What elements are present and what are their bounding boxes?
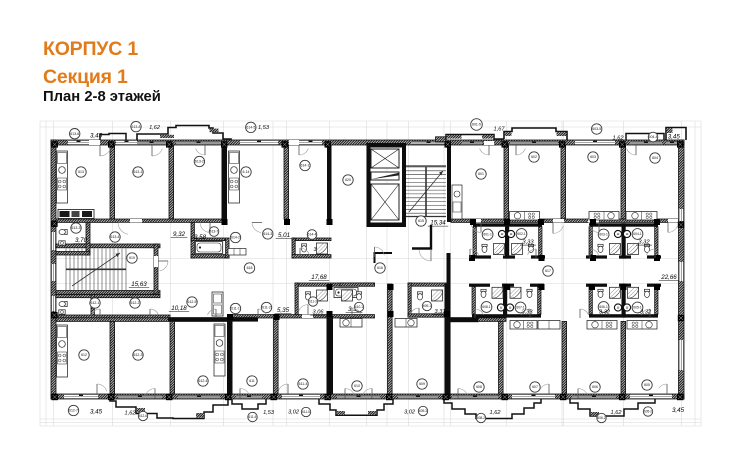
svg-text:613-3: 613-3	[72, 226, 81, 230]
svg-text:608-2: 608-2	[477, 416, 485, 420]
svg-text:17,68: 17,68	[311, 274, 327, 281]
svg-text:ш: ш	[617, 306, 620, 310]
svg-text:1,62: 1,62	[149, 125, 161, 131]
svg-text:603-5: 603-5	[592, 127, 601, 131]
svg-text:602-1: 602-1	[517, 232, 526, 236]
svg-text:3,31: 3,31	[435, 309, 446, 315]
svg-text:10,18: 10,18	[171, 305, 187, 312]
svg-text:604-4: 604-4	[649, 135, 658, 139]
svg-text:План 2-8 этажей: План 2-8 этажей	[43, 89, 161, 105]
svg-text:613-2: 613-2	[195, 160, 204, 164]
svg-text:611: 611	[249, 379, 255, 383]
svg-text:КОРПУС 1: КОРПУС 1	[43, 38, 138, 60]
svg-text:608: 608	[476, 385, 482, 389]
svg-text:612-6: 612-6	[139, 414, 147, 418]
svg-text:ш: ш	[617, 232, 620, 236]
svg-text:606-2: 606-2	[597, 416, 605, 420]
svg-text:3,45: 3,45	[90, 409, 103, 416]
svg-text:602: 602	[531, 155, 537, 159]
svg-text:3: 3	[314, 247, 317, 253]
svg-text:614-2: 614-2	[231, 236, 240, 240]
svg-text:1,62: 1,62	[125, 411, 137, 417]
svg-text:3,32: 3,32	[599, 310, 611, 316]
svg-text:612-3: 612-3	[134, 353, 143, 357]
svg-text:606: 606	[592, 385, 598, 389]
svg-text:612: 612	[81, 353, 87, 357]
svg-text:614-5: 614-5	[246, 126, 255, 130]
svg-text:3,45: 3,45	[668, 134, 681, 141]
svg-text:611-5: 611-5	[302, 410, 310, 414]
svg-text:5,35: 5,35	[277, 307, 290, 314]
svg-text:1,53: 1,53	[258, 125, 270, 131]
svg-text:3,45: 3,45	[90, 133, 103, 140]
svg-text:601-5: 601-5	[472, 123, 481, 127]
svg-text:ш: ш	[500, 306, 503, 310]
svg-text:613-6: 613-6	[70, 132, 79, 136]
svg-text:1,53: 1,53	[263, 410, 275, 416]
svg-text:610: 610	[354, 384, 360, 388]
svg-text:609: 609	[419, 382, 425, 386]
svg-text:618: 618	[247, 266, 253, 270]
svg-text:607: 607	[532, 385, 538, 389]
svg-text:603: 603	[590, 155, 596, 159]
svg-text:601: 601	[478, 172, 484, 176]
svg-text:612-2: 612-2	[131, 301, 140, 305]
svg-text:ш: ш	[501, 232, 504, 236]
svg-text:15,34: 15,34	[430, 220, 446, 227]
svg-text:605-2: 605-2	[644, 410, 652, 414]
svg-text:611-1: 611-1	[231, 307, 240, 311]
svg-text:613-8: 613-8	[132, 125, 141, 129]
svg-text:611-6: 611-6	[249, 415, 257, 419]
svg-text:3,70: 3,70	[75, 237, 88, 244]
svg-text:615: 615	[418, 219, 424, 223]
svg-text:603-1: 603-1	[599, 233, 608, 237]
svg-text:613-7: 613-7	[210, 230, 219, 234]
svg-text:ш: ш	[626, 232, 629, 236]
svg-text:604-1: 604-1	[633, 232, 642, 236]
svg-text:620: 620	[345, 178, 351, 182]
svg-text:15,63: 15,63	[131, 281, 147, 288]
svg-text:611-3: 611-3	[309, 300, 317, 304]
svg-text:609-3: 609-3	[419, 409, 427, 413]
svg-text:3,58: 3,58	[194, 234, 207, 241]
svg-text:9,32: 9,32	[173, 231, 186, 238]
svg-text:608-1: 608-1	[482, 305, 491, 309]
svg-text:613-1: 613-1	[134, 170, 143, 174]
svg-text:3,02: 3,02	[288, 410, 300, 416]
svg-text:1,62: 1,62	[490, 410, 502, 416]
svg-text:612-4: 612-4	[199, 379, 208, 383]
svg-text:3,45: 3,45	[672, 407, 685, 414]
svg-text:ш: ш	[510, 232, 513, 236]
svg-text:1,67: 1,67	[494, 127, 506, 133]
svg-text:604: 604	[652, 156, 658, 160]
svg-text:611-2: 611-2	[262, 306, 271, 310]
svg-text:3,33: 3,33	[522, 310, 534, 316]
svg-text:601-1: 601-1	[483, 233, 492, 237]
svg-text:ш: ш	[509, 306, 512, 310]
svg-text:1,62: 1,62	[611, 410, 623, 416]
svg-text:3,02: 3,02	[404, 410, 416, 416]
svg-text:613: 613	[78, 170, 84, 174]
svg-text:614-1: 614-1	[301, 164, 310, 168]
svg-text:616: 616	[377, 266, 383, 270]
svg-text:614-3: 614-3	[263, 232, 272, 236]
svg-text:617: 617	[545, 269, 551, 273]
svg-text:613-4: 613-4	[111, 235, 120, 239]
svg-text:Секция 1: Секция 1	[43, 66, 128, 88]
svg-text:612-1: 612-1	[91, 301, 100, 305]
svg-text:611-4: 611-4	[299, 382, 308, 386]
svg-text:3,32: 3,32	[638, 240, 650, 246]
svg-text:614-4: 614-4	[308, 233, 317, 237]
svg-text:22,66: 22,66	[660, 274, 677, 281]
svg-text:3,33: 3,33	[522, 240, 534, 246]
svg-text:6-14: 6-14	[242, 170, 249, 174]
svg-text:605: 605	[644, 383, 650, 387]
svg-text:612-5: 612-5	[188, 300, 197, 304]
svg-text:619: 619	[129, 256, 135, 260]
svg-text:3,06: 3,06	[313, 310, 325, 316]
svg-text:5,01: 5,01	[278, 232, 290, 239]
svg-text:ш: ш	[626, 306, 629, 310]
svg-text:612-7: 612-7	[69, 409, 78, 413]
svg-text:1,62: 1,62	[613, 136, 625, 142]
svg-text:609-1: 609-1	[423, 304, 431, 308]
